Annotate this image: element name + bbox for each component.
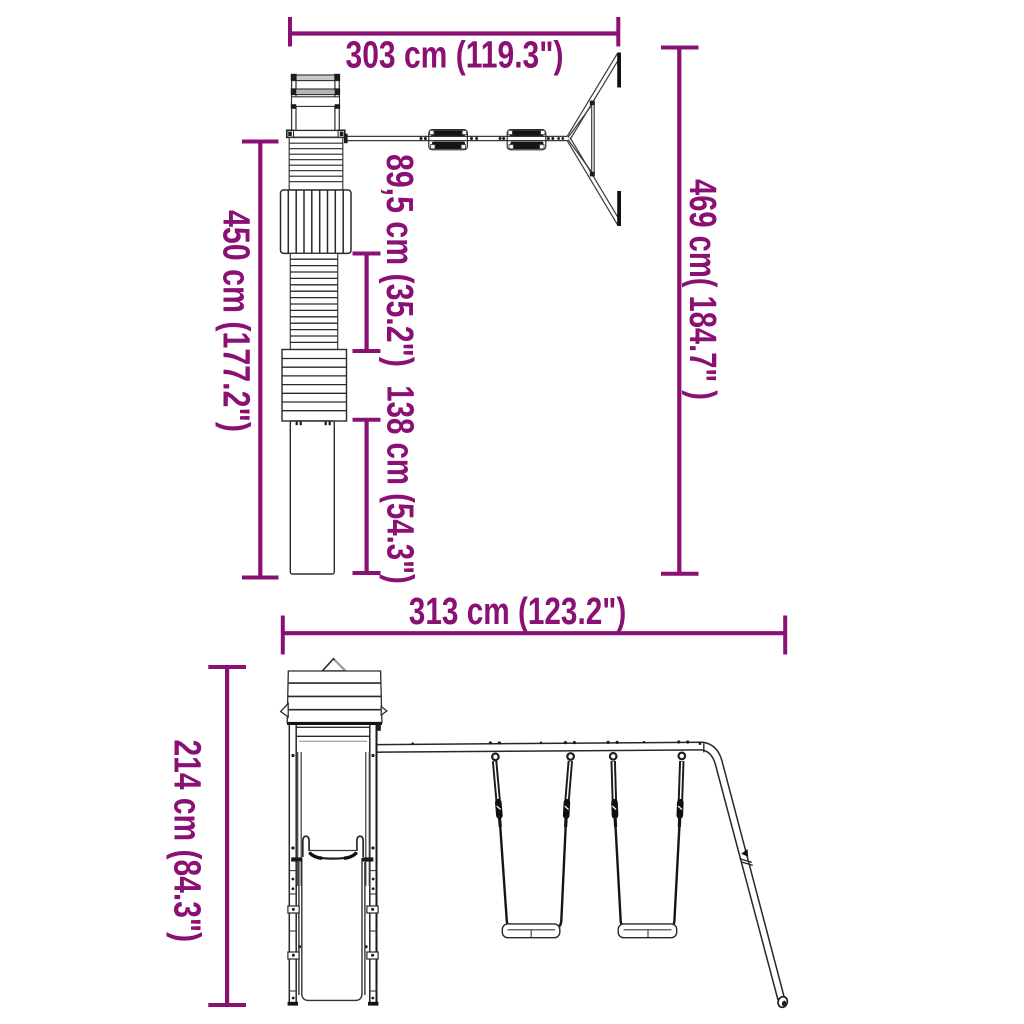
svg-text:313 cm (123.2"): 313 cm (123.2"): [409, 590, 627, 633]
svg-text:138 cm (54.3"): 138 cm (54.3"): [378, 385, 421, 584]
svg-text:303 cm (119.3"): 303 cm (119.3"): [346, 34, 564, 77]
svg-text:469 cm( 184.7" ): 469 cm( 184.7" ): [681, 179, 724, 400]
svg-text:450 cm (177.2"): 450 cm (177.2"): [215, 210, 258, 432]
svg-text:214 cm (84.3"): 214 cm (84.3"): [166, 740, 209, 943]
svg-text:89,5 cm (35.2"): 89,5 cm (35.2"): [378, 154, 421, 367]
